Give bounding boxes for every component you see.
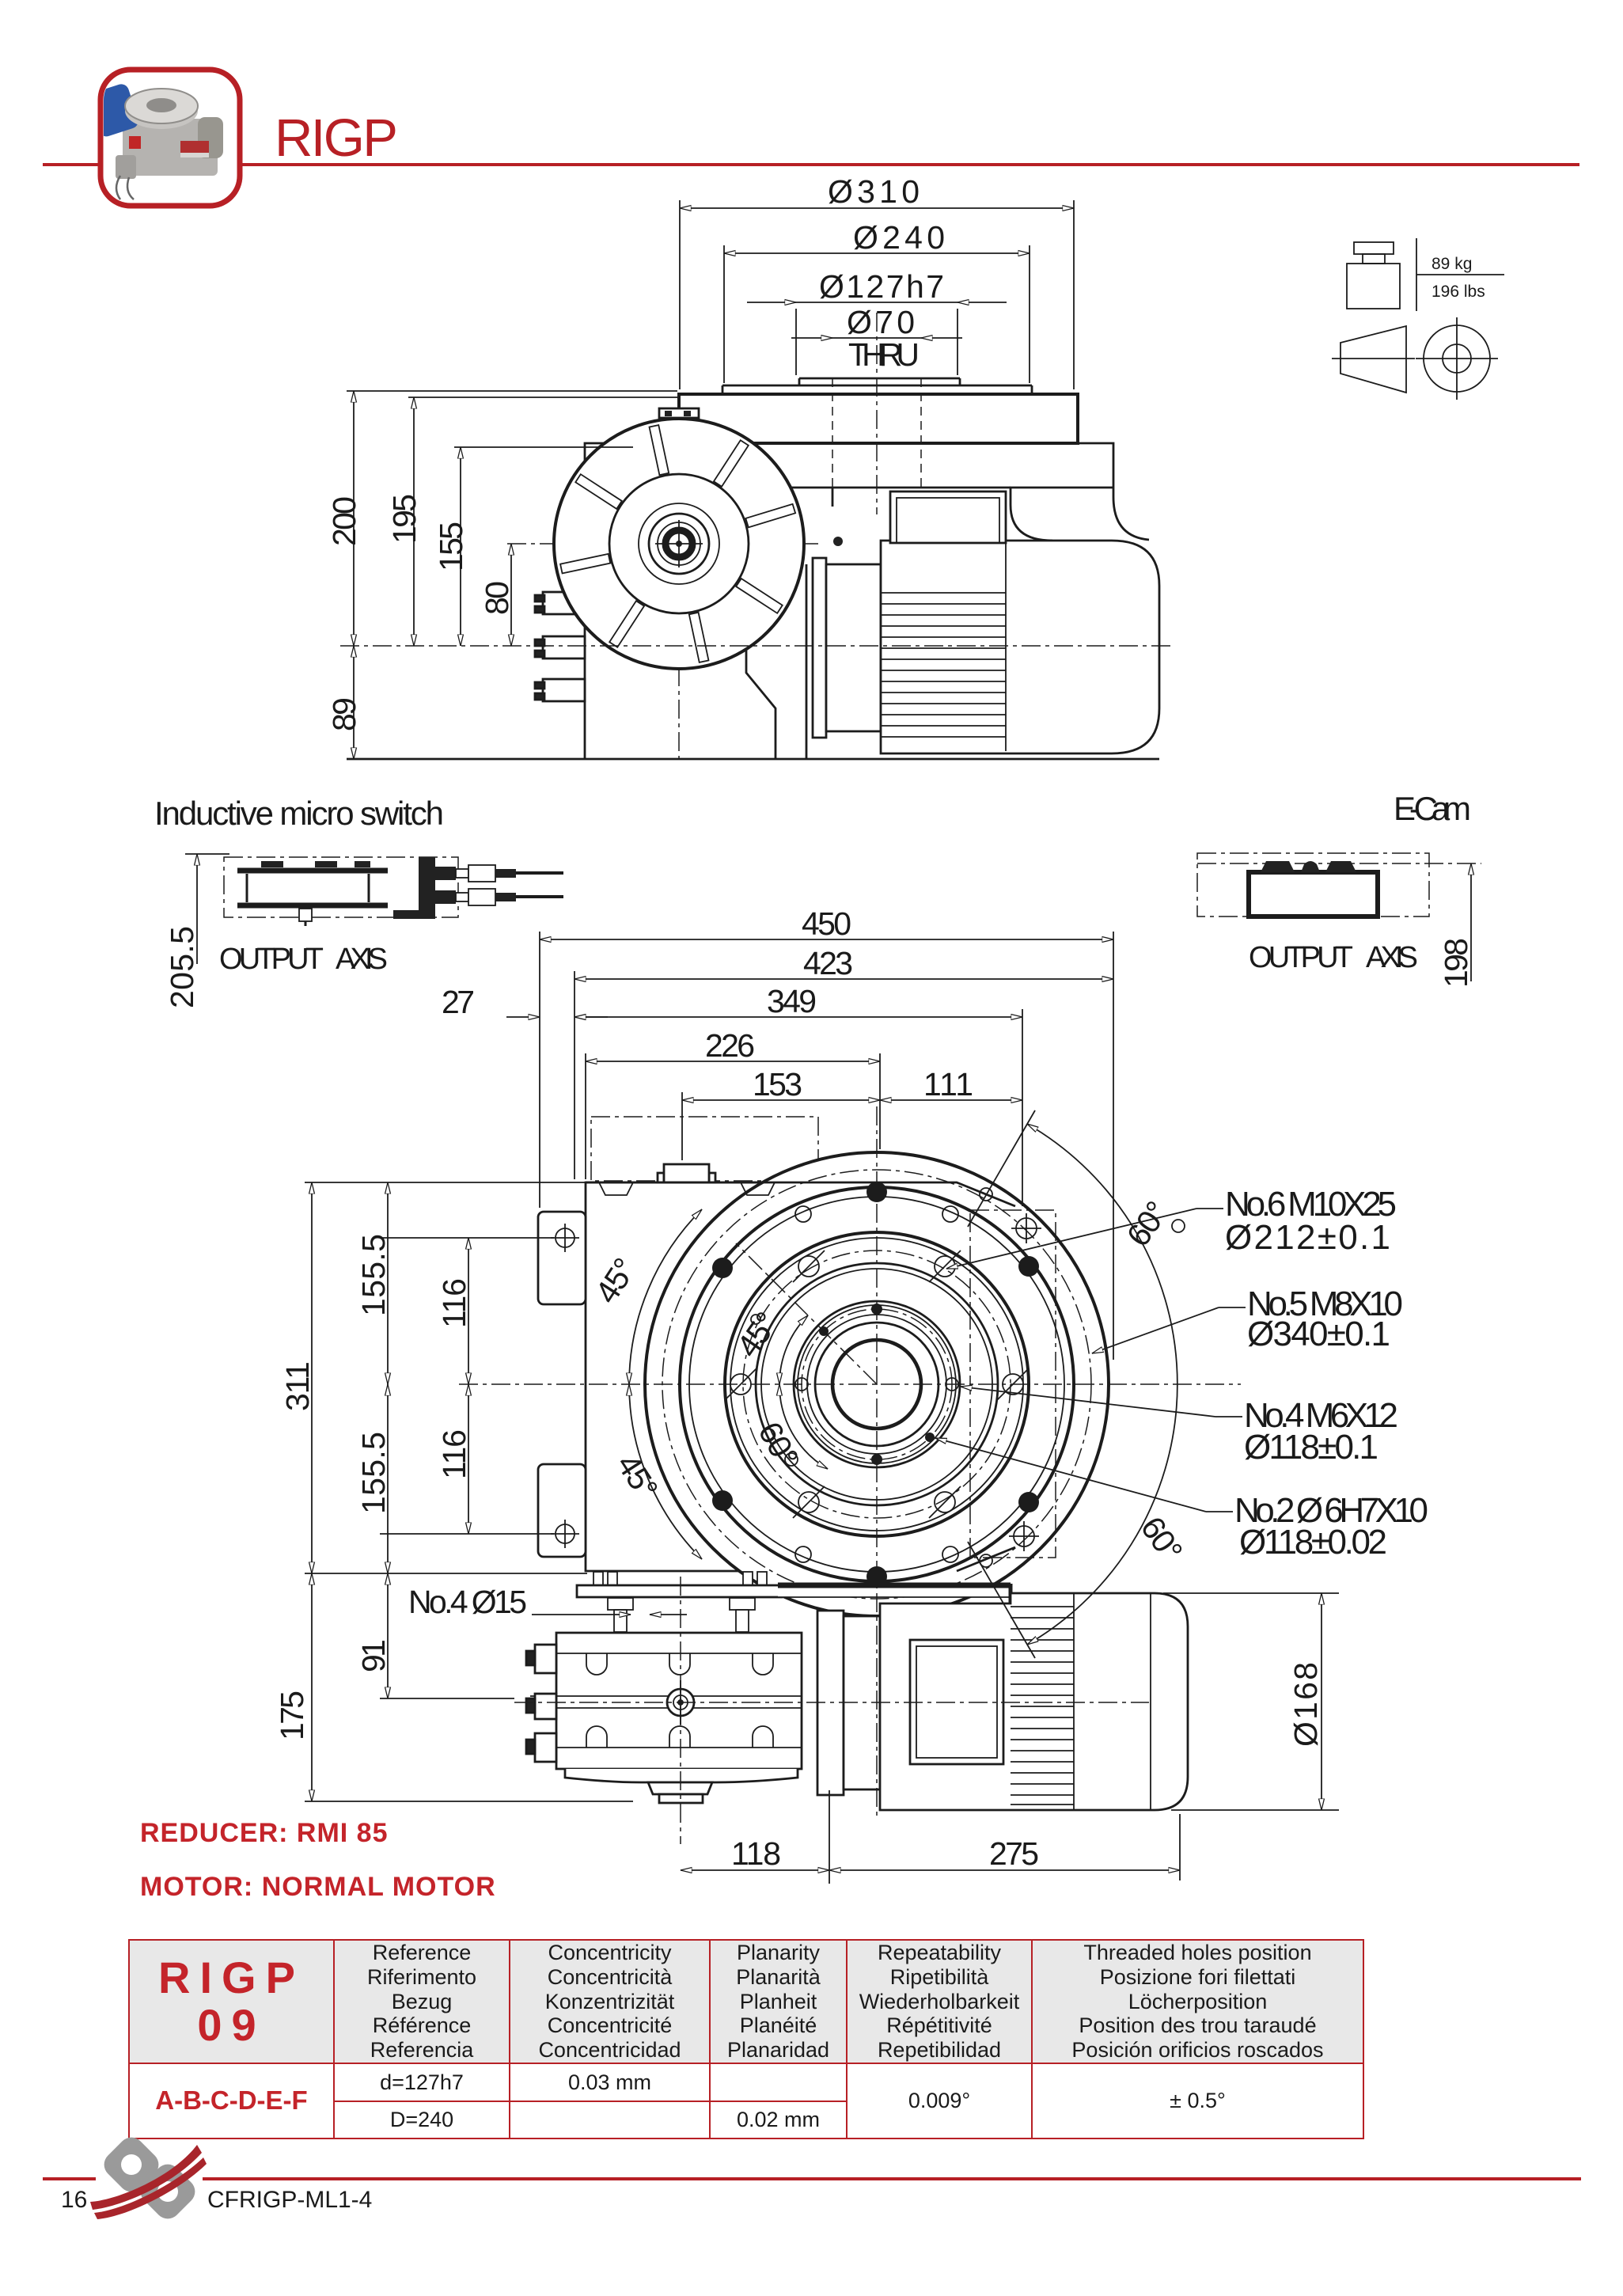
svg-text:111: 111 [923,1066,973,1102]
svg-text:Ø118±0.1: Ø118±0.1 [1244,1428,1378,1467]
svg-text:175: 175 [274,1691,310,1740]
svg-text:Ø340±0.1: Ø340±0.1 [1247,1315,1390,1353]
svg-text:Ø310: Ø310 [828,173,920,210]
svg-text:155: 155 [433,522,469,571]
svg-text:60°: 60° [1120,1194,1176,1253]
svg-text:80: 80 [479,581,515,615]
svg-text:155.5: 155.5 [355,1432,392,1514]
svg-text:195: 195 [386,494,423,544]
svg-text:No.4 Ø15: No.4 Ø15 [408,1584,527,1620]
svg-text:Ø212±0.1: Ø212±0.1 [1225,1218,1390,1257]
svg-text:226: 226 [705,1027,755,1064]
svg-text:200: 200 [326,496,362,546]
svg-text:Ø70: Ø70 [847,304,915,340]
svg-text:AXIS: AXIS [336,943,388,976]
svg-text:Ø118±0.02: Ø118±0.02 [1239,1523,1387,1562]
svg-text:Ø240: Ø240 [853,219,945,256]
svg-text:118: 118 [731,1835,781,1872]
svg-text:205.5: 205.5 [164,926,200,1008]
svg-text:91: 91 [355,1639,392,1672]
svg-text:Ø127h7: Ø127h7 [819,268,944,305]
svg-text:116: 116 [436,1278,472,1328]
svg-text:198: 198 [1438,938,1474,988]
svg-text:E-Cam: E-Cam [1394,790,1471,827]
svg-text:OUTPUT: OUTPUT [219,943,324,976]
svg-text:349: 349 [767,983,817,1019]
svg-text:450: 450 [802,905,851,942]
svg-text:OUTPUT: OUTPUT [1249,941,1353,974]
svg-text:196 lbs: 196 lbs [1432,283,1485,301]
svg-text:AXIS: AXIS [1366,941,1418,974]
svg-text:116: 116 [436,1429,472,1479]
svg-text:RIGP: RIGP [275,108,398,168]
svg-text:423: 423 [803,945,853,981]
svg-text:Ø168: Ø168 [1287,1662,1324,1747]
svg-text:89: 89 [326,697,362,731]
svg-text:THRU: THRU [848,336,920,373]
svg-text:311: 311 [279,1361,316,1411]
svg-text:27: 27 [442,984,475,1020]
svg-text:153: 153 [753,1066,802,1102]
svg-text:89 kg: 89 kg [1432,255,1472,273]
svg-text:275: 275 [989,1835,1039,1872]
svg-text:Inductive micro switch: Inductive micro switch [154,795,444,832]
svg-text:60°: 60° [1134,1510,1190,1569]
svg-text:155.5: 155.5 [355,1234,392,1316]
